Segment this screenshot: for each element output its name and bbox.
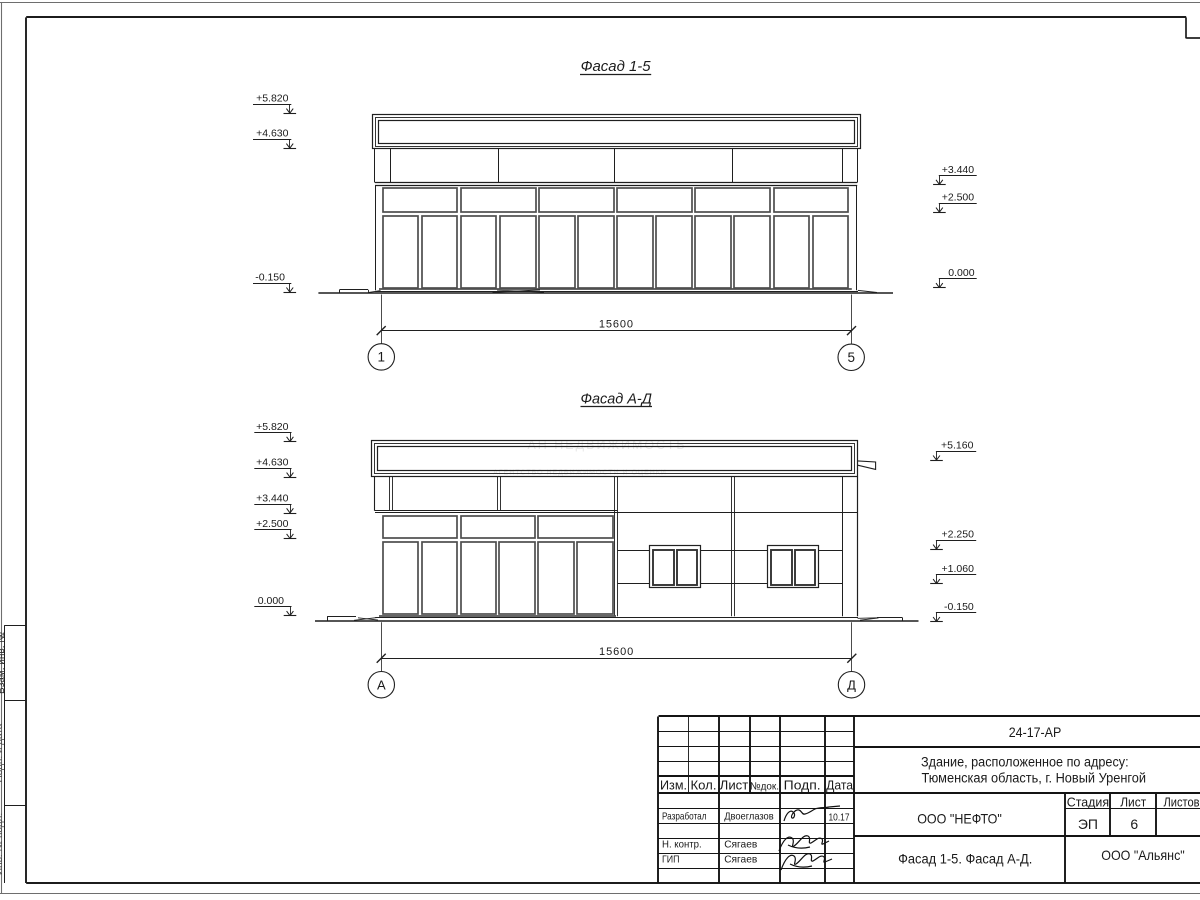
svg-text:24-17-АР: 24-17-АР bbox=[1009, 724, 1062, 740]
svg-text:ЭП: ЭП bbox=[1078, 816, 1098, 832]
svg-text:+3.440: +3.440 bbox=[256, 492, 289, 504]
svg-text:Сягаев: Сягаев bbox=[724, 854, 758, 866]
svg-text:5: 5 bbox=[847, 350, 855, 365]
svg-text:1: 1 bbox=[378, 350, 386, 365]
svg-text:Н. контр.: Н. контр. bbox=[662, 839, 702, 851]
svg-text:Двоеглазов: Двоеглазов bbox=[724, 811, 774, 823]
svg-text:Дата: Дата bbox=[826, 779, 853, 793]
svg-text:6: 6 bbox=[1130, 816, 1138, 832]
svg-text:Лист: Лист bbox=[1120, 795, 1146, 809]
svg-text:+1.060: +1.060 bbox=[942, 563, 975, 575]
svg-text:Лист: Лист bbox=[720, 779, 749, 793]
svg-text:А: А bbox=[377, 677, 386, 692]
svg-text:№док.: №док. bbox=[750, 780, 779, 792]
svg-text:Подп. и дата: Подп. и дата bbox=[0, 723, 5, 782]
svg-text:15600: 15600 bbox=[599, 646, 634, 658]
svg-text:+5.820: +5.820 bbox=[256, 421, 289, 433]
svg-text:ГИП: ГИП bbox=[662, 854, 680, 866]
svg-text:ООО "Альянс": ООО "Альянс" bbox=[1101, 847, 1185, 863]
svg-text:Фасад А-Д: Фасад А-Д bbox=[580, 391, 652, 407]
svg-text:+2.250: +2.250 bbox=[942, 529, 975, 541]
svg-text:Листов: Листов bbox=[1164, 795, 1200, 809]
svg-text:Фасад 1-5: Фасад 1-5 bbox=[581, 59, 652, 75]
svg-text:Тюменская область, г. Новый Ур: Тюменская область, г. Новый Уренгой bbox=[922, 771, 1147, 786]
svg-text:Кол.: Кол. bbox=[691, 779, 717, 793]
svg-text:Здание, расположенное по адрес: Здание, расположенное по адресу: bbox=[921, 755, 1129, 770]
svg-text:-0.150: -0.150 bbox=[255, 272, 285, 284]
svg-text:Фасад 1-5. Фасад А-Д.: Фасад 1-5. Фасад А-Д. bbox=[898, 851, 1032, 866]
svg-text:+3.440: +3.440 bbox=[942, 164, 975, 176]
svg-text:+2.500: +2.500 bbox=[942, 192, 975, 204]
svg-text:-0.150: -0.150 bbox=[944, 601, 974, 613]
svg-text:+4.630: +4.630 bbox=[256, 457, 289, 469]
svg-text:+5.160: +5.160 bbox=[941, 440, 974, 452]
svg-text:+4.630: +4.630 bbox=[256, 128, 289, 140]
svg-text:Разработал: Разработал bbox=[662, 811, 707, 823]
svg-text:+5.820: +5.820 bbox=[256, 93, 289, 105]
svg-text:Взам. инв. №: Взам. инв. № bbox=[0, 632, 7, 694]
svg-text:Инв. № подл.: Инв. № подл. bbox=[0, 813, 5, 875]
svg-text:0.000: 0.000 bbox=[948, 267, 974, 279]
svg-text:+2.500: +2.500 bbox=[256, 518, 289, 530]
svg-text:0.000: 0.000 bbox=[258, 595, 284, 607]
svg-text:Изм.: Изм. bbox=[660, 779, 687, 793]
svg-text:ООО "НЕФТО": ООО "НЕФТО" bbox=[917, 811, 1002, 827]
svg-text:10.17: 10.17 bbox=[829, 811, 850, 823]
svg-text:Сягаев: Сягаев bbox=[724, 839, 758, 851]
svg-text:Стадия: Стадия bbox=[1067, 795, 1109, 809]
svg-text:Подп.: Подп. bbox=[784, 779, 821, 793]
svg-text:Д: Д bbox=[847, 677, 856, 692]
svg-text:15600: 15600 bbox=[599, 319, 634, 331]
